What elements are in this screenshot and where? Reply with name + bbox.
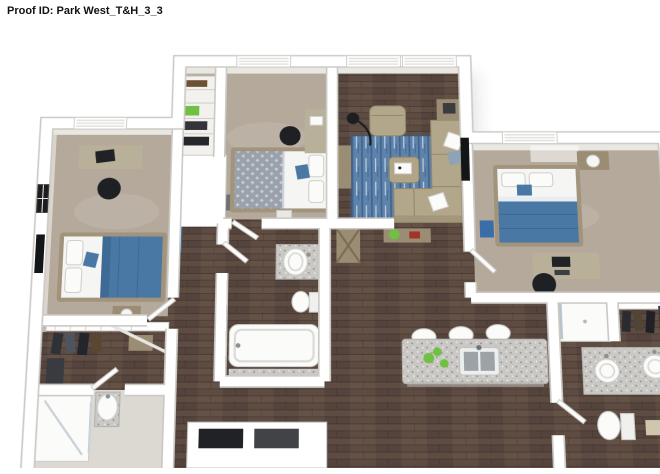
cooktop xyxy=(198,429,243,449)
table-lamp xyxy=(586,155,599,167)
shoe-rack xyxy=(45,358,64,386)
red-books xyxy=(409,231,420,238)
folded-clothes xyxy=(184,137,209,146)
counter-section xyxy=(254,429,299,449)
storage-bin xyxy=(184,106,199,116)
floorplan-scene xyxy=(0,0,660,440)
window xyxy=(502,132,557,144)
floorplan-3d-wrapper xyxy=(0,0,660,468)
pillow xyxy=(66,241,83,265)
folded-clothes xyxy=(186,80,207,87)
pillow xyxy=(502,173,526,187)
papers xyxy=(310,116,323,125)
pillow xyxy=(529,173,553,187)
pillow xyxy=(65,268,82,293)
accent-pillow xyxy=(517,185,532,196)
proof-id-label: Proof ID: Park West_T&H_3_3 xyxy=(7,5,163,17)
media-console xyxy=(337,145,351,188)
bedroom3-ceiling-light xyxy=(530,145,579,162)
laptop xyxy=(95,149,115,163)
sink xyxy=(594,359,619,382)
window xyxy=(74,117,127,129)
towel xyxy=(645,420,660,435)
window xyxy=(347,56,401,67)
decor-box xyxy=(443,103,456,114)
hanging-clothes xyxy=(91,332,102,352)
window xyxy=(237,56,291,67)
floorplan-proof-page: { "header": { "proof_id": "Proof ID: Par… xyxy=(0,0,660,440)
tv xyxy=(460,138,470,181)
monitor xyxy=(552,257,571,267)
serving-tray xyxy=(394,163,411,174)
office-chair xyxy=(279,126,300,145)
floorplan-render xyxy=(0,0,660,468)
pillow xyxy=(309,181,324,203)
toilet-bowl xyxy=(292,291,309,312)
hanging-clothes xyxy=(65,333,76,354)
toilet-tank xyxy=(620,414,635,440)
folded-clothes xyxy=(184,121,207,130)
hanging-clothes xyxy=(645,311,655,334)
pillow xyxy=(309,155,324,177)
patterned-duvet xyxy=(234,151,284,208)
armchair xyxy=(370,106,406,136)
window xyxy=(402,56,456,67)
accent-pillow xyxy=(295,164,310,180)
keyboard xyxy=(554,270,569,275)
faucet xyxy=(306,253,310,257)
duvet xyxy=(498,201,579,242)
hanging-clothes xyxy=(622,311,631,332)
storage-bin xyxy=(480,220,494,237)
